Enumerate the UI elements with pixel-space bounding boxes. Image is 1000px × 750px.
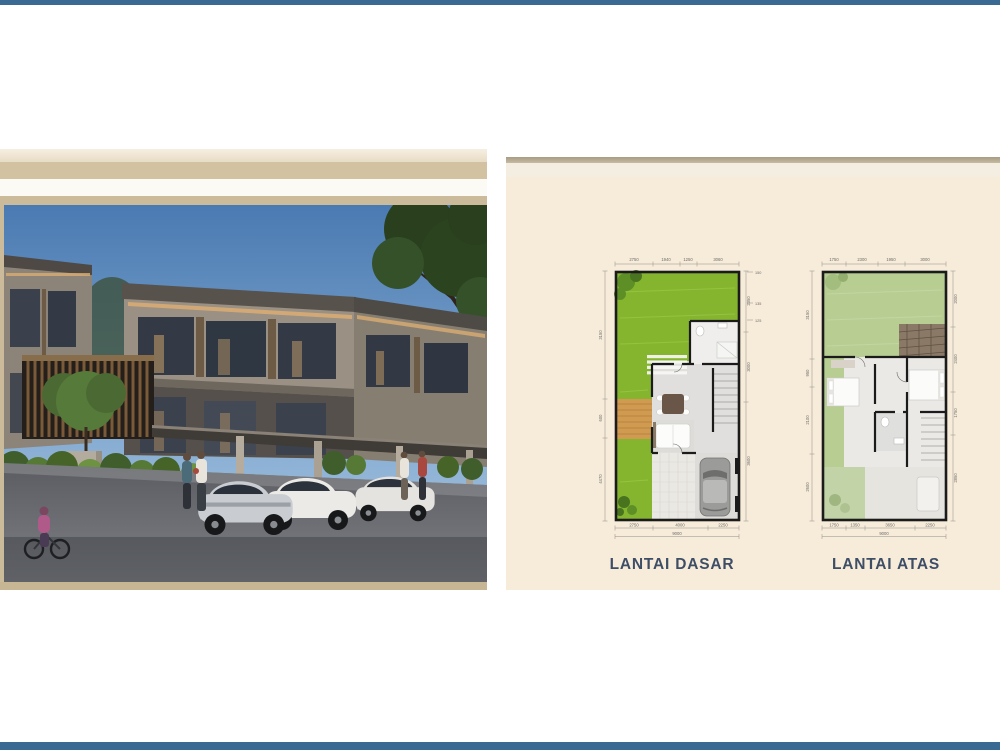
floor-plan-upper: 1750 2300 1950 3000 3150 950 2100 2600 2… <box>797 252 1000 545</box>
slide-bottom-bar <box>0 742 1000 750</box>
svg-text:4000: 4000 <box>675 523 685 528</box>
svg-text:3000: 3000 <box>746 362 751 372</box>
svg-text:1940: 1940 <box>661 257 671 262</box>
svg-text:9000: 9000 <box>879 531 889 536</box>
frame-band-outer <box>0 149 487 162</box>
svg-text:3600: 3600 <box>746 456 751 466</box>
svg-text:1350: 1350 <box>850 523 860 528</box>
svg-text:2000: 2000 <box>953 294 958 304</box>
frame-band-white <box>0 179 487 196</box>
svg-text:150: 150 <box>755 271 761 275</box>
sofa <box>653 420 694 452</box>
svg-text:950: 950 <box>805 369 810 377</box>
frame-band-inner <box>0 196 487 205</box>
svg-text:3150: 3150 <box>805 310 810 320</box>
terrace-planter <box>917 477 939 511</box>
svg-text:9000: 9000 <box>672 531 682 536</box>
svg-text:1750: 1750 <box>829 523 839 528</box>
svg-text:1950: 1950 <box>886 257 896 262</box>
presentation-slide: { "slide": { "background": "#ffffff", "t… <box>0 0 1000 750</box>
svg-text:2250: 2250 <box>718 523 728 528</box>
terrace-green <box>823 467 865 520</box>
svg-text:2100: 2100 <box>805 415 810 425</box>
svg-text:2250: 2250 <box>925 523 935 528</box>
svg-text:125: 125 <box>755 319 761 323</box>
svg-text:3150: 3150 <box>598 330 603 340</box>
frame-band-tan <box>0 162 487 179</box>
svg-text:135: 135 <box>755 302 761 306</box>
svg-text:2600: 2600 <box>805 482 810 492</box>
patio-tiles <box>652 453 695 520</box>
svg-text:4470: 4470 <box>598 474 603 484</box>
bed-master <box>909 370 945 400</box>
svg-text:3000: 3000 <box>920 257 930 262</box>
svg-text:1250: 1250 <box>683 257 693 262</box>
svg-text:2400: 2400 <box>953 354 958 364</box>
svg-text:2850: 2850 <box>953 473 958 483</box>
ground-floor-label: LANTAI DASAR <box>572 556 772 574</box>
townhouse-render-scene <box>4 205 487 582</box>
svg-text:2350: 2350 <box>746 296 751 306</box>
upper-bathroom <box>876 413 906 451</box>
svg-text:600: 600 <box>598 414 603 422</box>
townhouse-photo <box>0 205 487 582</box>
frame-band-bottom <box>0 582 487 590</box>
svg-text:2750: 2750 <box>629 523 639 528</box>
svg-text:3650: 3650 <box>885 523 895 528</box>
upper-floor-label: LANTAI ATAS <box>786 556 986 574</box>
slide-top-bar <box>0 0 1000 5</box>
wood-deck <box>617 399 652 439</box>
svg-text:2300: 2300 <box>857 257 867 262</box>
bed-left <box>827 360 859 406</box>
plans-panel-top-strip <box>506 163 1000 177</box>
svg-text:1750: 1750 <box>953 408 958 418</box>
svg-text:2750: 2750 <box>629 257 639 262</box>
car-top-view <box>700 458 730 516</box>
svg-text:3060: 3060 <box>713 257 723 262</box>
photo-panel <box>0 149 487 590</box>
svg-text:1750: 1750 <box>829 257 839 262</box>
floor-plan-ground: 2750 1940 1250 3060 3150 600 4470 2350 3… <box>590 252 795 545</box>
